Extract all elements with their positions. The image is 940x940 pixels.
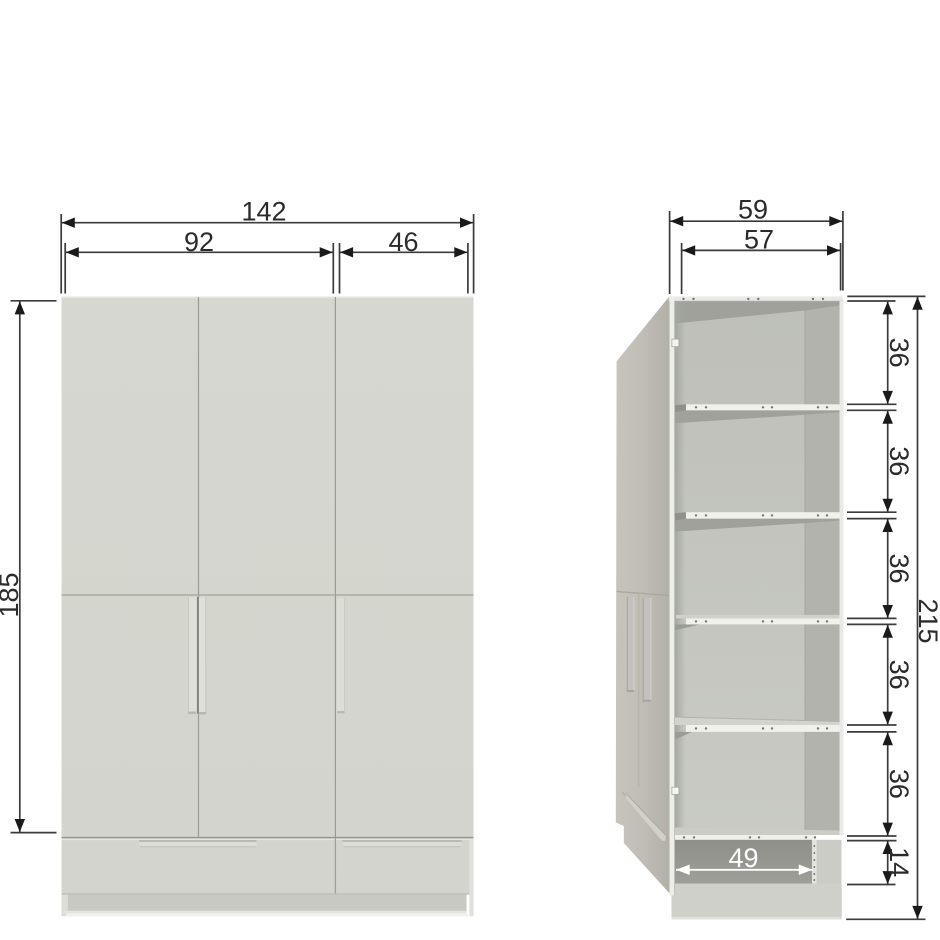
- svg-text:14: 14: [884, 847, 914, 877]
- svg-text:57: 57: [744, 225, 774, 255]
- svg-text:215: 215: [913, 598, 940, 643]
- svg-text:36: 36: [884, 338, 914, 368]
- svg-text:36: 36: [884, 553, 914, 583]
- svg-text:46: 46: [388, 227, 418, 257]
- svg-text:36: 36: [884, 769, 914, 799]
- svg-text:49: 49: [728, 843, 758, 873]
- svg-text:36: 36: [884, 660, 914, 690]
- svg-text:36: 36: [884, 446, 914, 476]
- svg-text:92: 92: [184, 227, 214, 257]
- svg-text:142: 142: [241, 197, 286, 227]
- svg-text:185: 185: [0, 572, 24, 617]
- svg-text:59: 59: [738, 195, 768, 225]
